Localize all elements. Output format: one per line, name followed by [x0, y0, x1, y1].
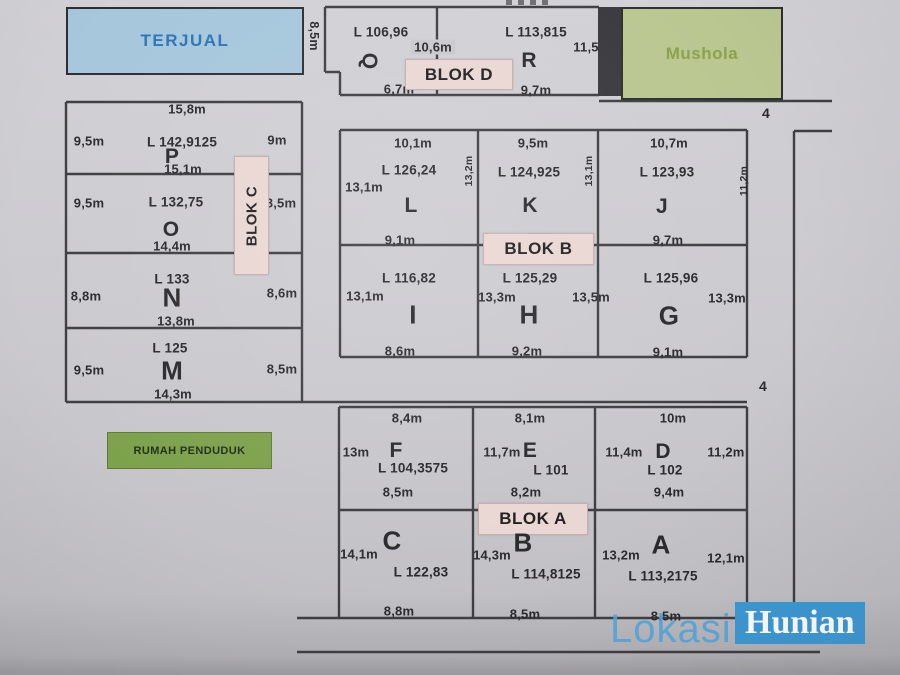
terjual-box: TERJUAL: [66, 7, 304, 75]
plot-I-letter: I: [409, 300, 416, 331]
plot-R-area-label: L 113,815: [505, 25, 567, 40]
watermark-hunian: Hunian: [745, 604, 855, 642]
plot-Q-letter: Q: [357, 53, 381, 70]
plot-E-left-dim: 11,7m: [483, 445, 520, 460]
plot-E-bottom-dim: 8,2m: [511, 485, 541, 500]
plot-D-top-dim: 10m: [660, 411, 687, 426]
plot-N-bottom-dim: 13,8m: [157, 314, 195, 329]
plot-N-letter: N: [163, 283, 182, 314]
plot-K-letter: K: [522, 194, 537, 218]
plot-N-right-dim: 8,6m: [267, 286, 297, 301]
plot-Q-top-dim: 10,6m: [411, 40, 455, 55]
dark-divider-bar: [598, 7, 621, 96]
plot-G-area-label: L 125,96: [644, 271, 699, 286]
site-plan-photo: TERJUAL 8,5m L 106,96 Q 10,6m 6,7m L 113…: [0, 0, 900, 675]
plot-R-letter: R: [521, 49, 536, 73]
blok-c-label: BLOK C: [243, 185, 260, 246]
plot-E-top-dim: 8,1m: [515, 411, 545, 426]
plot-H-bottom-dim: 9,2m: [512, 344, 542, 359]
blok-a-label-box: BLOK A: [478, 503, 588, 535]
plot-F-left-dim: 13m: [343, 445, 370, 460]
mushola-label: Mushola: [666, 44, 738, 64]
plot-Q-area-label: L 106,96: [354, 25, 409, 40]
plot-B-letter: B: [514, 528, 533, 559]
plot-R-bottom-dim: 9,7m: [521, 83, 551, 98]
plot-M-right-dim: 8,5m: [267, 362, 297, 377]
plot-B-bottom-dim: 8,5m: [510, 607, 540, 622]
plot-H-area-label: L 125,29: [503, 271, 558, 286]
plot-O-area-label: L 132,75: [149, 195, 204, 210]
plot-C-area-label: L 122,83: [394, 565, 449, 580]
plot-A-area-label: L 113,2175: [628, 569, 697, 584]
plot-B-left-dim: 14,3m: [473, 548, 511, 563]
plan-lines: [0, 0, 900, 675]
plot-C-bottom-dim: 8,8m: [384, 604, 414, 619]
plot-O-bottom-dim: 14,4m: [153, 239, 191, 254]
plot-H-letter: H: [520, 300, 539, 331]
plot-F-area-label: L 104,3575: [378, 461, 448, 476]
plot-C-left-dim: 14,1m: [340, 547, 378, 562]
plot-O-right-dim: 8,5m: [266, 196, 296, 211]
blok-b-label: BLOK B: [504, 239, 572, 259]
plot-L-bottom-dim: 9,1m: [385, 233, 415, 248]
plot-F-top-dim: 8,4m: [392, 411, 422, 426]
plot-L-letter: L: [404, 194, 417, 218]
plot-E-letter: E: [523, 439, 537, 463]
plot-K-area-label: L 124,925: [498, 165, 560, 180]
plot-L-top-dim: 10,1m: [394, 136, 432, 151]
plot-P-right-dim: 9m: [267, 133, 286, 148]
blok-a-label: BLOK A: [499, 509, 567, 529]
plot-A-letter: A: [652, 530, 671, 561]
plot-L-area-label: L 126,24: [382, 163, 437, 178]
plot-I-left-dim: 13,1m: [346, 289, 384, 304]
plot-D-bottom-dim: 9,4m: [654, 485, 684, 500]
plot-G-bottom-dim: 9,1m: [653, 345, 683, 360]
plot-P-area-label: L 142,9125: [147, 135, 217, 150]
blok-d-label: BLOK D: [425, 65, 493, 85]
plot-M-bottom-dim: 14,3m: [154, 387, 192, 402]
plot-B-area-label: L 114,8125: [511, 567, 580, 582]
plot-J-area-label: L 123,93: [640, 165, 695, 180]
plot-I-bottom-dim: 8,6m: [385, 344, 415, 359]
plot-M-left-dim: 9,5m: [74, 363, 104, 378]
plot-J-letter: J: [656, 195, 668, 219]
plot-D-right-dim: 11,2m: [707, 445, 744, 460]
plot-C-letter: C: [383, 526, 402, 557]
plot-J-bottom-dim: 9,7m: [653, 233, 683, 248]
watermark-hunian-box: Hunian: [735, 602, 865, 644]
plot-M-area-label: L 125: [152, 341, 187, 356]
plot-J-top-dim: 10,7m: [650, 136, 688, 151]
mushola-box: Mushola: [621, 7, 783, 100]
plot-H-right-dim: 13,5m: [572, 290, 610, 305]
plot-O-left-dim: 9,5m: [74, 196, 104, 211]
terjual-label: TERJUAL: [141, 31, 230, 51]
plot-P-top-dim: 15,8m: [168, 102, 206, 117]
blok-c-label-box: BLOK C: [234, 156, 269, 275]
rumah-penduduk-box: RUMAH PENDUDUK: [107, 432, 272, 469]
plot-N-left-dim: 8,8m: [71, 289, 101, 304]
plot-H-left-dim: 13,3m: [478, 290, 516, 305]
plot-L-left-dim: 13,1m: [345, 180, 383, 195]
plot-K-top-dim: 9,5m: [518, 136, 548, 151]
plot-F-bottom-dim: 8,5m: [383, 485, 413, 500]
plot-E-area-label: L 101: [533, 463, 568, 478]
watermark-lokasi: Lokasi: [610, 607, 732, 652]
blok-d-label-box: BLOK D: [405, 59, 513, 90]
plot-I-area-label: L 116,82: [382, 271, 436, 286]
plot-Q-left-dim: 8,5m: [307, 21, 321, 50]
rumah-penduduk-label: RUMAH PENDUDUK: [134, 445, 246, 457]
plot-D-letter: D: [655, 440, 670, 464]
plot-D-area-label: L 102: [647, 463, 682, 478]
blok-b-label-box: BLOK B: [483, 233, 594, 265]
plot-P-bottom-dim: 15,1m: [164, 162, 202, 177]
plot-P-left-dim: 9,5m: [74, 134, 104, 149]
plot-M-letter: M: [161, 356, 183, 387]
plot-A-left-dim: 13,2m: [602, 548, 640, 563]
cropped-dimension-text: [506, 0, 552, 5]
plot-G-letter: G: [659, 301, 679, 332]
road-width-label-mid: 4: [759, 378, 767, 394]
plot-J-right-dim: 11,2m: [738, 166, 750, 196]
plot-D-left-dim: 11,4m: [605, 445, 642, 460]
plot-A-right-dim: 12,1m: [707, 551, 745, 566]
road-width-label-top: 4: [762, 105, 770, 121]
plot-K-right-dim: 13,1m: [583, 156, 595, 187]
plot-R-right-dim: 11,5: [573, 40, 598, 55]
plot-F-letter: F: [389, 439, 402, 463]
plot-G-right-dim: 13,3m: [708, 291, 746, 306]
plot-L-right-dim: 13,2m: [463, 156, 475, 187]
